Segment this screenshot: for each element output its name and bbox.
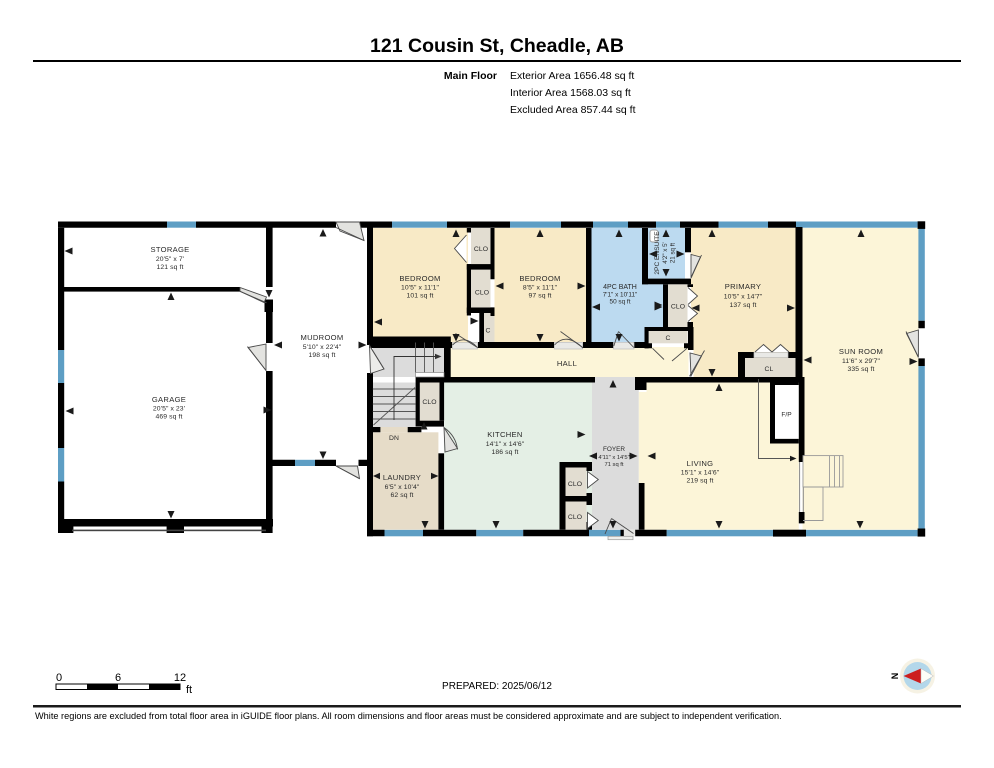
svg-text:Interior Area 1568.03 sq ft: Interior Area 1568.03 sq ft xyxy=(510,87,631,99)
svg-text:KITCHEN: KITCHEN xyxy=(487,430,522,439)
svg-text:20'5" x 23': 20'5" x 23' xyxy=(153,406,185,413)
svg-text:0: 0 xyxy=(56,672,62,684)
svg-text:White regions are excluded fro: White regions are excluded from total fl… xyxy=(35,711,782,721)
svg-text:97 sq ft: 97 sq ft xyxy=(528,293,551,300)
svg-text:11'6" x 29'7": 11'6" x 29'7" xyxy=(842,358,881,365)
svg-text:5'10" x 22'4": 5'10" x 22'4" xyxy=(303,344,342,351)
svg-text:ft: ft xyxy=(186,684,192,696)
svg-text:7'1" x 10'11": 7'1" x 10'11" xyxy=(603,292,638,299)
svg-text:12: 12 xyxy=(174,672,186,684)
svg-text:F/P: F/P xyxy=(781,412,792,419)
svg-text:8'5" x 11'1": 8'5" x 11'1" xyxy=(523,285,558,292)
svg-text:BEDROOM: BEDROOM xyxy=(519,274,560,283)
svg-text:335 sq ft: 335 sq ft xyxy=(848,366,875,373)
svg-text:CLO: CLO xyxy=(475,290,489,297)
svg-text:LAUNDRY: LAUNDRY xyxy=(383,473,421,482)
svg-text:Excluded Area 857.44 sq ft: Excluded Area 857.44 sq ft xyxy=(510,104,636,116)
svg-text:4PC BATH: 4PC BATH xyxy=(603,284,637,291)
svg-text:14'1" x 14'6": 14'1" x 14'6" xyxy=(486,441,525,448)
svg-text:CLO: CLO xyxy=(671,304,685,311)
svg-text:186 sq ft: 186 sq ft xyxy=(492,449,519,456)
svg-text:2PC ENSUITE: 2PC ENSUITE xyxy=(654,231,661,275)
svg-text:BEDROOM: BEDROOM xyxy=(399,274,440,283)
svg-text:121 Cousin St, Cheadle, AB: 121 Cousin St, Cheadle, AB xyxy=(370,35,624,57)
svg-text:6'5" x 10'4": 6'5" x 10'4" xyxy=(385,484,420,491)
svg-text:PRIMARY: PRIMARY xyxy=(725,282,762,291)
svg-text:198 sq ft: 198 sq ft xyxy=(309,352,336,359)
svg-text:C: C xyxy=(485,328,490,335)
svg-text:Exterior Area 1656.48 sq ft: Exterior Area 1656.48 sq ft xyxy=(510,70,634,82)
svg-text:219 sq ft: 219 sq ft xyxy=(687,478,714,485)
svg-text:10'5" x 14'7": 10'5" x 14'7" xyxy=(724,294,763,301)
svg-text:SUN ROOM: SUN ROOM xyxy=(839,347,883,356)
svg-text:FOYER: FOYER xyxy=(603,446,625,453)
svg-text:LIVING: LIVING xyxy=(687,459,714,468)
svg-text:CLO: CLO xyxy=(474,246,488,253)
svg-text:4'2" x 5': 4'2" x 5' xyxy=(662,242,669,263)
svg-text:21 sq ft: 21 sq ft xyxy=(670,243,677,264)
svg-text:MUDROOM: MUDROOM xyxy=(300,333,343,342)
svg-text:HALL: HALL xyxy=(557,359,577,368)
svg-text:CL: CL xyxy=(765,366,774,373)
svg-text:4'11" x 14'5": 4'11" x 14'5" xyxy=(598,455,629,461)
svg-text:STORAGE: STORAGE xyxy=(150,245,189,254)
svg-text:10'5" x 11'1": 10'5" x 11'1" xyxy=(401,285,440,292)
svg-text:15'1" x 14'6": 15'1" x 14'6" xyxy=(681,470,720,477)
svg-text:137 sq ft: 137 sq ft xyxy=(730,302,757,309)
svg-text:C: C xyxy=(665,335,670,342)
svg-text:CLO: CLO xyxy=(422,399,436,406)
svg-text:6: 6 xyxy=(115,672,121,684)
svg-text:GARAGE: GARAGE xyxy=(152,395,186,404)
svg-text:469 sq ft: 469 sq ft xyxy=(156,414,183,421)
svg-text:50 sq ft: 50 sq ft xyxy=(610,299,631,306)
svg-text:N: N xyxy=(890,673,900,680)
svg-text:121 sq ft: 121 sq ft xyxy=(157,264,184,271)
svg-text:DN: DN xyxy=(389,435,399,442)
svg-text:71 sq ft: 71 sq ft xyxy=(604,462,623,468)
svg-text:101 sq ft: 101 sq ft xyxy=(407,293,434,300)
svg-text:CLO: CLO xyxy=(568,481,582,488)
svg-text:PREPARED: 2025/06/12: PREPARED: 2025/06/12 xyxy=(442,681,552,692)
svg-text:Main Floor: Main Floor xyxy=(444,70,497,82)
svg-text:20'5" x 7': 20'5" x 7' xyxy=(156,256,184,263)
svg-text:CLO: CLO xyxy=(568,514,582,521)
svg-text:62 sq ft: 62 sq ft xyxy=(390,492,413,499)
